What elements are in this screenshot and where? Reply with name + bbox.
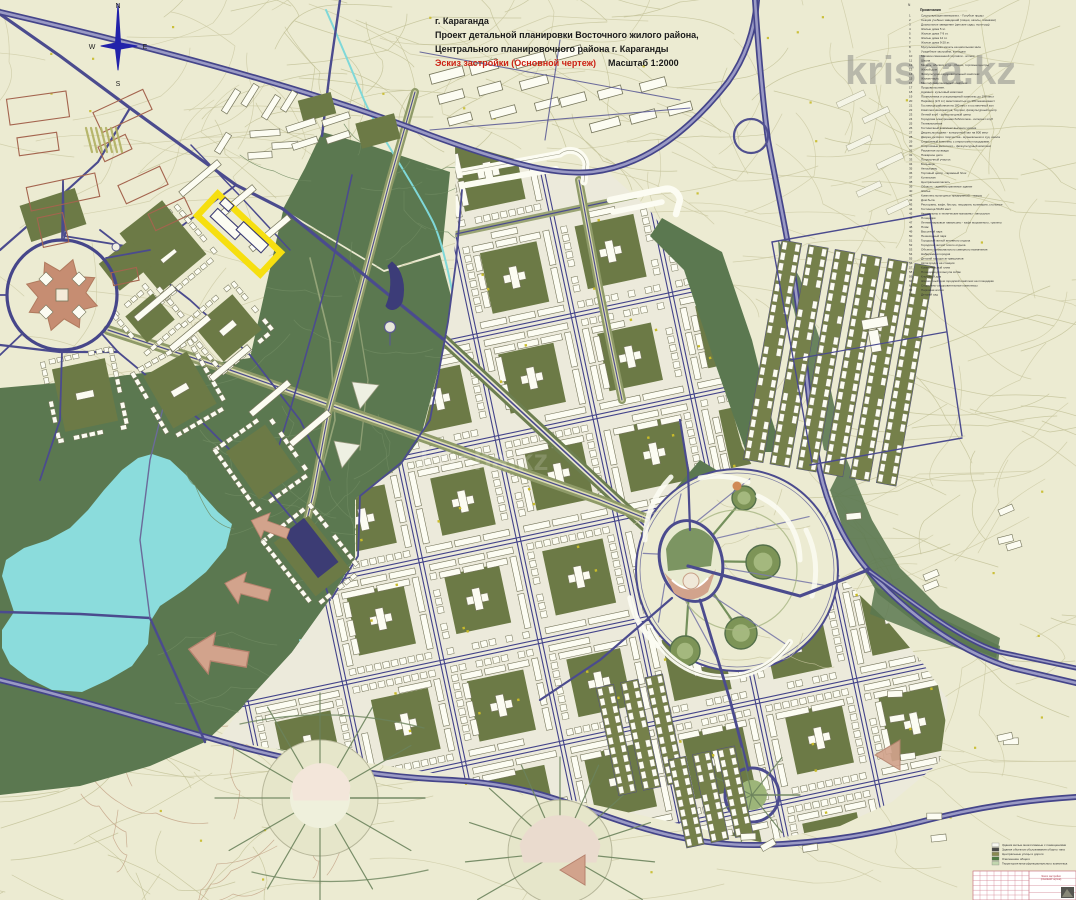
svg-text:22: 22 [909,108,913,112]
svg-text:Спортивно-оздоровительные комп: Спортивно-оздоровительные комплексы [921,284,978,288]
svg-text:Больница: Больница [921,162,935,166]
svg-text:17: 17 [909,86,913,90]
svg-text:(основной чертеж): (основной чертеж) [1041,878,1062,881]
svg-text:46: 46 [909,216,913,220]
svg-text:45: 45 [909,212,913,216]
svg-text:Мечеть, обелиск и т.д. - Рынки: Мечеть, обелиск и т.д. - Рынки, торговые… [921,63,989,67]
svg-text:11: 11 [909,59,912,63]
svg-text:39: 39 [909,185,913,189]
svg-text:Летние парковые павильоны - ка: Летние парковые павильоны - кафе морожен… [921,221,1002,225]
svg-text:Спортивные высотного - физкуль: Спортивные высотного - физкультурный ком… [921,144,992,148]
svg-text:Гостиничный комплекс высшего у: Гостиничный комплекс высшего уровня [921,126,977,130]
svg-text:61: 61 [909,284,913,288]
svg-text:13: 13 [909,68,913,72]
svg-text:51: 51 [909,239,913,243]
svg-text:19: 19 [909,95,913,99]
svg-text:W: W [89,44,96,51]
svg-text:18: 18 [909,90,913,94]
svg-text:30: 30 [909,144,913,148]
svg-text:Центральная мечеть: Центральная мечеть [921,180,950,184]
svg-text:58: 58 [909,270,913,274]
svg-text:23: 23 [909,113,913,117]
svg-text:Дворец молодежи - концертный з: Дворец молодежи - концертный зал на 800 … [921,131,989,135]
svg-text:36: 36 [909,171,913,175]
svg-text:Комплекс кинотеатров, боулинг,: Комплекс кинотеатров, боулинг, физкульту… [921,108,997,112]
svg-text:16: 16 [909,81,913,85]
svg-text:Масштаб 1:2000: Масштаб 1:2000 [608,58,679,68]
svg-text:Дошкольное заведение (детские: Дошкольное заведение (детские сады, ясли… [921,23,990,27]
svg-text:Городской жилой активного отды: Городской жилой активного отдыха [921,239,971,243]
svg-text:Торговый центр - гаражный блок: Торговый центр - гаражный блок [921,171,967,175]
svg-text:47: 47 [909,221,913,225]
svg-text:Спортивный комплекс с открытым: Спортивный комплекс с открытыми площадка… [921,140,989,144]
svg-text:Высотный парк: Высотный парк [921,230,943,234]
svg-text:Летний клуб - физкультурный це: Летний клуб - физкультурный центр [921,113,971,117]
svg-text:34: 34 [909,162,913,166]
svg-text:Раскатная эстакада: Раскатная эстакада [921,149,949,153]
svg-text:Школа: Школа [921,59,930,63]
svg-text:krisha.kz: krisha.kz [420,444,548,477]
svg-text:Магазин смешанной торговли - а: Магазин смешанной торговли - аптеки [921,54,975,58]
svg-text:Жилой дом: Жилой дом [921,68,937,72]
svg-text:Телевизионная: Телевизионная [921,122,943,126]
svg-text:29: 29 [909,140,913,144]
svg-text:Жилые дома 12 эт.: Жилые дома 12 эт. [921,36,948,40]
svg-text:53: 53 [909,248,913,252]
svg-text:Многофункциональный комплекс: Многофункциональный комплекс [921,81,968,85]
svg-text:50: 50 [909,234,913,238]
svg-text:Продовольствен.: Продовольствен. [921,86,945,90]
svg-text:Проект детальной планировки Во: Проект детальной планировки Восточного ж… [435,30,699,40]
svg-text:Автогородок на станции: Автогородок на станции [921,261,955,265]
svg-text:60: 60 [909,279,913,283]
svg-text:Городская электронная библиоте: Городская электронная библиотека - интер… [921,117,993,121]
svg-text:49: 49 [909,230,913,234]
svg-text:Гостиница 50-80 мест: Гостиница 50-80 мест [921,207,952,211]
svg-text:Существующая минерализ. - Голу: Существующая минерализ. - Голубые пруды [921,14,983,18]
svg-text:Усадебные застройки, коттеджи: Усадебные застройки, коттеджи [921,50,966,54]
svg-text:Пожарное депо: Пожарное депо [921,153,943,157]
svg-text:Жилые дома 7-9 эт.: Жилые дома 7-9 эт. [921,32,949,36]
svg-text:S: S [116,81,121,88]
svg-text:Жилая часть: Жилая часть [921,77,939,81]
svg-text:Гостиница районная на 180 мест: Гостиница районная на 180 мест и гостини… [921,104,994,108]
svg-text:Городской жилой тихого отдыха: Городской жилой тихого отдыха [921,243,966,247]
svg-text:Здания объектов обслуживания о: Здания объектов обслуживания общего типа [1002,848,1065,852]
svg-text:E: E [143,44,148,51]
svg-text:48: 48 [909,225,913,229]
svg-text:Детский городок аттракционов: Детский городок аттракционов [921,257,964,261]
svg-text:Область - административное зда: Область - административное здание [921,185,973,189]
svg-text:Клубовый дом: Клубовый дом [921,275,941,279]
svg-text:Дворец детского творчества - м: Дворец детского творчества - музыкальная… [921,135,1000,139]
svg-text:56: 56 [909,261,913,265]
svg-text:35: 35 [909,167,913,171]
svg-text:57: 57 [909,266,913,270]
svg-text:31: 31 [909,149,913,153]
svg-text:Пляж: Пляж [921,225,929,229]
svg-text:Площадки: Площадки [921,216,936,220]
svg-text:Рестораны, кафе, бистро, пицце: Рестораны, кафе, бистро, пиццерии, кулин… [921,203,1003,207]
svg-text:Эскиз застройки (Основной черт: Эскиз застройки (Основной чертеж) [435,58,596,68]
svg-text:Паркинги (2-5 эт.) вместимость: Паркинги (2-5 эт.) вместимостью до 380 м… [921,99,996,103]
svg-text:25: 25 [909,122,913,126]
svg-text:Физкультурно-оздоровительный к: Физкультурно-оздоровительный комплекс [921,72,980,76]
svg-text:N: N [115,3,120,10]
svg-text:Погрузочный участок: Погрузочный участок [921,158,951,162]
svg-text:Набережная городов: Набережная городов [921,252,951,256]
svg-text:Территория многофункциональног: Территория многофункционального комплекс… [1002,861,1068,865]
svg-text:12: 12 [909,63,913,67]
svg-text:43: 43 [909,203,913,207]
svg-text:Мусульманская мечеть на наполь: Мусульманская мечеть на напольном зале [921,45,981,49]
svg-text:41: 41 [909,194,913,198]
svg-text:Детский сад: Детский сад [921,293,938,297]
svg-text:Центральные улицы и дороги: Центральные улицы и дороги [1002,852,1044,856]
svg-text:Жилые дома 5 эт.: Жилые дома 5 эт. [921,27,946,31]
svg-text:27: 27 [909,131,913,135]
svg-text:38: 38 [909,180,913,184]
svg-text:54: 54 [909,252,913,256]
svg-text:37: 37 [909,176,913,180]
svg-text:Поликлиника и стационарный ком: Поликлиника и стационарный комплекс до 1… [921,95,995,99]
svg-text:Парковая аллея: Парковая аллея [921,288,944,292]
svg-text:Жилье: Жилье [921,189,931,193]
svg-text:28: 28 [909,135,913,139]
svg-text:Пешеходный парк: Пешеходный парк [921,234,947,238]
svg-text:24: 24 [909,117,913,121]
svg-text:Автосервис: Автосервис [921,167,938,171]
svg-text:Котельная: Котельная [921,176,936,180]
svg-text:Секция учебных заведений (лице: Секция учебных заведений (лицеи, школы, … [921,18,996,22]
svg-text:Жилые дома 9-20 эт.: Жилые дома 9-20 эт. [921,41,950,45]
svg-text:10: 10 [909,54,913,58]
svg-text:Площадка для выгула собак: Площадка для выгула собак [921,270,961,274]
svg-text:44: 44 [909,207,913,211]
svg-text:33: 33 [909,158,913,162]
svg-text:20: 20 [909,99,913,103]
svg-text:Дом быта: Дом быта [921,198,935,202]
svg-text:Коммунальный пляж: Коммунальный пляж [921,266,950,270]
svg-text:Озеленение общего: Озеленение общего [1002,857,1030,861]
svg-text:52: 52 [909,243,913,247]
svg-text:Жилкостный дом городской компл: Жилкостный дом городской комплекс на пло… [921,279,994,283]
svg-text:Центрального планировочного ра: Центрального планировочного района г. Ка… [435,44,669,54]
svg-text:40: 40 [909,189,913,193]
svg-text:63: 63 [909,293,913,297]
svg-text:42: 42 [909,198,913,202]
svg-text:14: 14 [909,72,913,76]
svg-text:Примечания: Примечания [920,8,941,12]
svg-text:26: 26 [909,126,913,130]
svg-text:15: 15 [909,77,913,81]
svg-text:62: 62 [909,288,913,292]
svg-text:32: 32 [909,153,913,157]
svg-text:Автосалоны и технические магаз: Автосалоны и технические магазины - авто… [921,212,990,216]
svg-text:Объекты коммунального северног: Объекты коммунального северного назначен… [921,248,988,252]
svg-text:Здания жилые многоэтажные с по: Здания жилые многоэтажные с помещениями [1002,843,1066,847]
svg-text:21: 21 [909,104,913,108]
svg-text:Комплекс культурных предприяти: Комплекс культурных предприятий - театры [921,194,982,198]
svg-text:г. Караганда: г. Караганда [435,16,490,26]
svg-text:55: 55 [909,257,913,261]
svg-text:Админис. культовый комплекс: Админис. культовый комплекс [921,90,964,94]
svg-text:59: 59 [909,275,913,279]
